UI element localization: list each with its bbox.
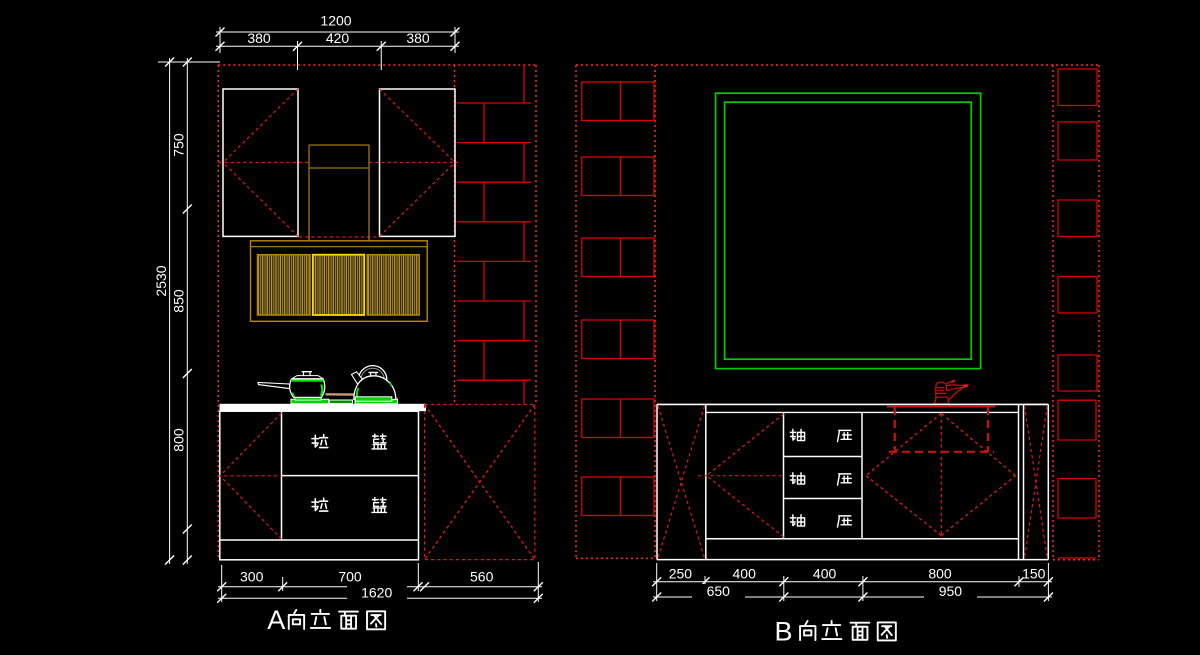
svg-text:380: 380 — [406, 30, 430, 46]
svg-text:1200: 1200 — [320, 13, 351, 29]
svg-text:250: 250 — [669, 566, 693, 582]
svg-text:380: 380 — [247, 30, 271, 46]
svg-text:800: 800 — [171, 428, 187, 452]
svg-text:950: 950 — [939, 583, 963, 599]
svg-text:1620: 1620 — [361, 585, 392, 601]
svg-text:300: 300 — [240, 569, 264, 585]
svg-text:750: 750 — [171, 133, 187, 157]
svg-text:A: A — [267, 605, 285, 635]
svg-text:150: 150 — [1022, 566, 1046, 582]
svg-text:850: 850 — [171, 289, 187, 313]
svg-text:700: 700 — [338, 569, 362, 585]
svg-text:420: 420 — [326, 30, 350, 46]
svg-text:650: 650 — [707, 583, 731, 599]
svg-text:400: 400 — [813, 566, 837, 582]
svg-text:560: 560 — [470, 569, 494, 585]
svg-text:800: 800 — [928, 566, 952, 582]
svg-text:B: B — [774, 617, 792, 647]
svg-text:400: 400 — [733, 566, 757, 582]
svg-text:2530: 2530 — [153, 265, 169, 296]
